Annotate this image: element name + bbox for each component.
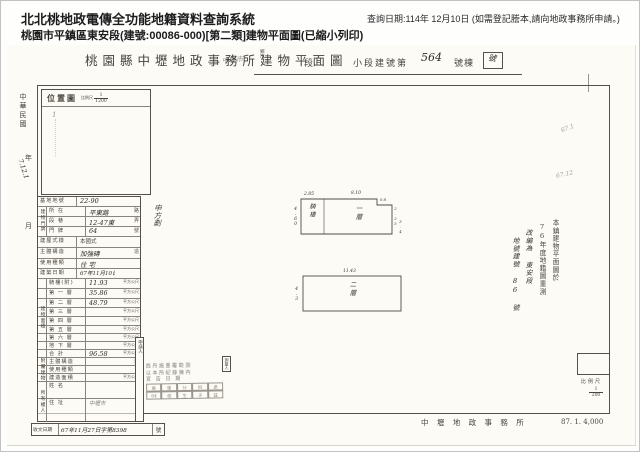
subsection-label: 小段建號第 [353, 56, 408, 69]
row-value: 中壢市 [86, 399, 115, 421]
resurvey-note-col-1: 本鎮建物平面圖於 [550, 219, 560, 343]
stamp-cell: 校 [162, 391, 178, 399]
dim-first-floor-width: 8.10 [351, 191, 361, 196]
row-value: 64 [86, 227, 115, 236]
map-scale-fraction: 1 200 [589, 387, 603, 398]
margin-year-label: 年 [25, 153, 32, 163]
stamp-cell: 途 [208, 382, 224, 390]
stamp-tab-applicant: 申請人 [135, 337, 144, 422]
row-suffix: 平方公尺 [115, 289, 140, 298]
second-floor-label: 二層 [347, 281, 357, 307]
row-value [86, 317, 115, 325]
receipt-row: 收文日期 67年11月27日字第8398 號 [31, 423, 165, 436]
stamp-cell: 04 [146, 391, 162, 399]
row-suffix [115, 259, 140, 268]
row-value: 48.79 [86, 299, 115, 308]
row-value: 11.93 [86, 279, 115, 288]
surveyor-label: 測量人 [224, 358, 230, 370]
scale-denominator: 1200 [94, 99, 108, 104]
row-suffix: 平方公尺 [115, 317, 140, 325]
row-value: 加強磚 [77, 248, 115, 258]
building-number-handwritten: 564 [421, 51, 442, 64]
row-value [86, 382, 115, 398]
building-attribute-table: 基地地號22-90 所 在平東路路 段 巷12-47東弄 門 牌64號 建屋式樣… [37, 196, 141, 422]
receipt-label: 收文日期 [32, 424, 59, 435]
issuing-office: 中 壢 地 政 事 務 所 [421, 417, 527, 428]
row-suffix [115, 237, 140, 247]
table-row: 使用種類 [38, 366, 140, 374]
row-label: 建屋式樣 [38, 237, 77, 247]
title-underline [254, 74, 522, 75]
row-value: 67年11月10日 [77, 269, 115, 278]
table-row: 段 巷12-47東弄 [38, 217, 140, 227]
row-suffix: 平方公尺 [115, 326, 140, 333]
city-char: 市 [260, 55, 265, 60]
location-map-box: 位置圖 比例尺 1 1200 1 [41, 89, 151, 195]
dim-second-floor-height: 4.3 [294, 287, 299, 303]
location-map-label: 位置圖 [42, 93, 77, 104]
table-row: 主體構造加強磚造 [38, 248, 140, 259]
table-row: 地 下 層平方公尺 [38, 342, 140, 350]
row-label: 主體構造 [38, 248, 77, 258]
first-floor-label: 一層 [353, 205, 363, 231]
row-label: 使用種類 [38, 259, 77, 268]
handwritten-city: 中壢市 [222, 54, 244, 65]
stamp-cell: 子 [192, 390, 208, 398]
row-value: 12-47東 [86, 217, 115, 226]
building-suffix-box: 號 [483, 52, 503, 69]
stamp-grid-row: 04校生子玆 [146, 390, 223, 399]
table-row: 合 計96.58平方公尺 [38, 350, 140, 358]
row-value [86, 308, 115, 316]
table-row: 主體構造造 [38, 358, 140, 366]
row-suffix: 平方公尺 [115, 279, 140, 288]
row-label: 建築日期 [38, 269, 77, 278]
building-number-suffix: 號棟 [454, 56, 474, 69]
location-map-sketch-line [55, 119, 56, 157]
document-subtitle: 桃園市平鎮區東安段(建號:00086-000)[第二類]建物平面圖(已縮小列印) [21, 27, 363, 43]
table-row: 使用種類住 宅 [38, 259, 140, 269]
dim-first-floor-height: 4.60 [293, 207, 298, 229]
margin-month-label: 月 [25, 221, 32, 231]
receipt-value: 67年11月27日字第8398 [59, 424, 152, 435]
group-label-building-area: 建物面積 [38, 278, 47, 358]
map-scale-label: 比例尺 [581, 378, 602, 385]
row-value: 96.58 [86, 350, 115, 357]
row-value: 住 宅 [77, 259, 115, 268]
table-row: 騎樓(附)11.93平方公尺 [38, 279, 140, 289]
stamp-tab-surveyor: 測量人 [222, 356, 231, 372]
table-row: 第 六 層平方公尺 [38, 334, 140, 342]
group-label-owner: 所有權人 [38, 382, 47, 422]
row-value: 本國式 [77, 237, 115, 247]
dim-first-floor-left-width: 2.85 [304, 192, 314, 197]
row-value: 平東路 [86, 207, 115, 216]
row-value [86, 342, 115, 349]
table-row: 第 一 層35.86平方公尺 [38, 289, 140, 299]
township-label: 鄉 市 [260, 50, 265, 60]
row-suffix: 路 [115, 207, 140, 216]
section-label: 段 [304, 56, 313, 69]
table-row: 所 在平東路路 [38, 207, 140, 217]
receipt-suffix: 號 [152, 424, 164, 435]
table-row: 第 二 層48.79平方公尺 [38, 299, 140, 309]
row-value [86, 334, 115, 341]
stamp-cell: 科 [192, 382, 208, 390]
table-row: 建造面積平方公尺 [38, 374, 140, 382]
map-scale-denominator: 200 [589, 393, 603, 398]
table-row: 建築日期67年11月10日 [38, 269, 140, 279]
margin-era-label: 中華民國 [18, 93, 28, 153]
table-row: 住 址中壢市 [38, 399, 140, 421]
row-label: 基地地號 [38, 197, 77, 206]
table-row: 第 四 層平方公尺 [38, 317, 140, 326]
table-row: 第 三 層平方公尺 [38, 308, 140, 317]
arcade-label: 騎樓 [307, 203, 316, 231]
stamp-cell: 生 [177, 390, 193, 398]
row-value: 35.86 [86, 289, 115, 298]
table-row: 門 牌64號 [38, 227, 140, 237]
corner-box [577, 353, 610, 375]
row-value [86, 374, 115, 381]
location-scale-fraction: 1 1200 [94, 93, 108, 104]
row-value [86, 326, 115, 333]
dim-notch-side: 2.25 [393, 206, 398, 218]
row-suffix: 造 [115, 248, 140, 258]
dim-second-floor-width: 11.43 [343, 269, 356, 274]
table-row: 基地地號22-90 [38, 197, 140, 207]
row-suffix [115, 269, 140, 278]
group-label-door-plate: 建物門牌 [38, 206, 47, 236]
dim-notch-width: 0.8 [380, 197, 386, 202]
dim-right-side: 3.4 [398, 219, 403, 231]
row-suffix: 弄 [115, 217, 140, 226]
system-title: 北北桃地政電傳全功能地籍資料查詢系統 [21, 9, 255, 28]
row-suffix [115, 197, 140, 206]
boxed-handwritten-char: 號 [483, 52, 502, 65]
row-suffix: 號 [115, 227, 140, 236]
stamp-cell: 座 [146, 383, 162, 391]
location-map-header: 位置圖 比例尺 1 1200 [42, 90, 150, 107]
applicant-label: 申請人 [137, 340, 143, 354]
row-value [86, 366, 115, 373]
page: 北北桃地政電傳全功能地籍資料查詢系統 查詢日期:114年 12月10日 (如需登… [0, 0, 640, 452]
query-date: 查詢日期:114年 12月10日 (如需登記謄本,請向地政事務所申請。) [367, 12, 620, 25]
location-scale-label: 比例尺 [77, 95, 93, 101]
verification-stamp: 西丹施量覆勘測 以本所紀錄棟內 宣 告 日 期 座後分科途 04校生子玆 [146, 362, 224, 399]
row-value: 22-90 [77, 197, 115, 206]
resurvey-note-col-2: 76年度地籍圖重測 [537, 223, 547, 347]
location-map-mark: 1 [42, 107, 150, 119]
table-row: 建屋式樣本國式 [38, 237, 140, 248]
stamp-cell: 玆 [208, 390, 224, 398]
group-label-annex: 附屬建物 [38, 358, 47, 382]
resurvey-note-col-3: 改編為 東安段 [523, 229, 533, 341]
resurvey-note-col-4: 地號建號 86 號 [510, 237, 520, 341]
print-code: 87. 1. 4,000 [561, 418, 603, 426]
table-row: 姓 名 [38, 382, 140, 399]
row-value [86, 358, 115, 365]
row-suffix: 平方公尺 [115, 299, 140, 308]
row-suffix: 平方公尺 [115, 308, 140, 316]
table-row: 第 五 層平方公尺 [38, 326, 140, 334]
